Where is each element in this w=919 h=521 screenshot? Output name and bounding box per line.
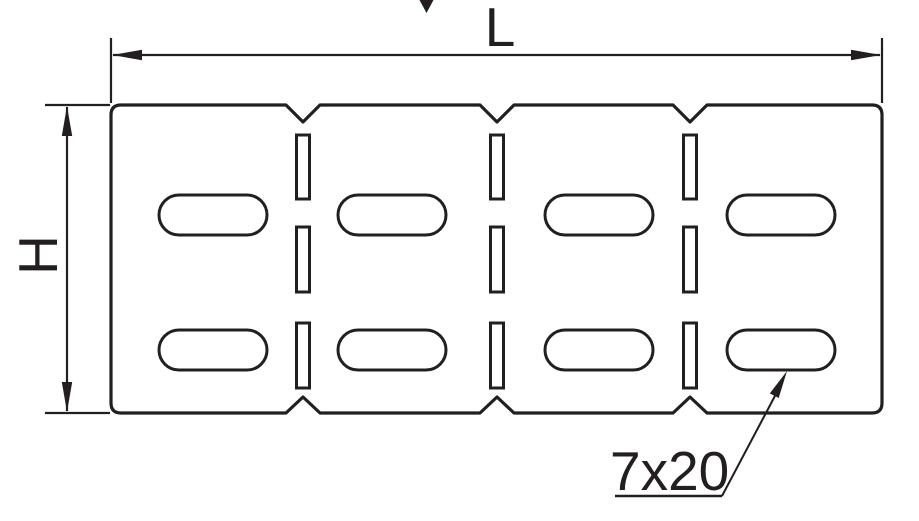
- oblong-slot: [159, 195, 267, 235]
- rect-slot: [684, 135, 697, 199]
- rect-slot: [684, 227, 697, 292]
- oblong-slot: [159, 330, 267, 370]
- oblong-slot: [727, 330, 835, 370]
- rect-slot: [297, 227, 310, 292]
- rect-slot: [491, 323, 504, 388]
- rect-slot: [297, 323, 310, 388]
- dimension-height: H: [7, 105, 110, 413]
- slot-size-label: 7x20: [610, 440, 729, 502]
- arrow-up-icon: [62, 106, 72, 136]
- rect-slot: [297, 135, 310, 199]
- arrow-right-icon: [851, 50, 881, 60]
- oblong-slot: [545, 330, 653, 370]
- oblong-slot: [727, 195, 835, 235]
- rect-slot: [684, 323, 697, 388]
- oblong-slot: [338, 330, 446, 370]
- arrow-left-icon: [112, 50, 142, 60]
- height-dim-label: H: [7, 235, 69, 275]
- arrow-down-icon: [62, 382, 72, 412]
- technical-drawing-canvas: L H 7x20: [0, 0, 919, 521]
- top-partial-arrow-icon: [420, 0, 434, 13]
- length-dim-label: L: [485, 0, 516, 58]
- rect-slot: [491, 227, 504, 292]
- oblong-slot: [338, 195, 446, 235]
- slotted-plate-drawing: L H 7x20: [0, 0, 919, 521]
- dimension-length: L: [111, 0, 882, 103]
- oblong-slot: [545, 195, 653, 235]
- rect-slot: [491, 135, 504, 199]
